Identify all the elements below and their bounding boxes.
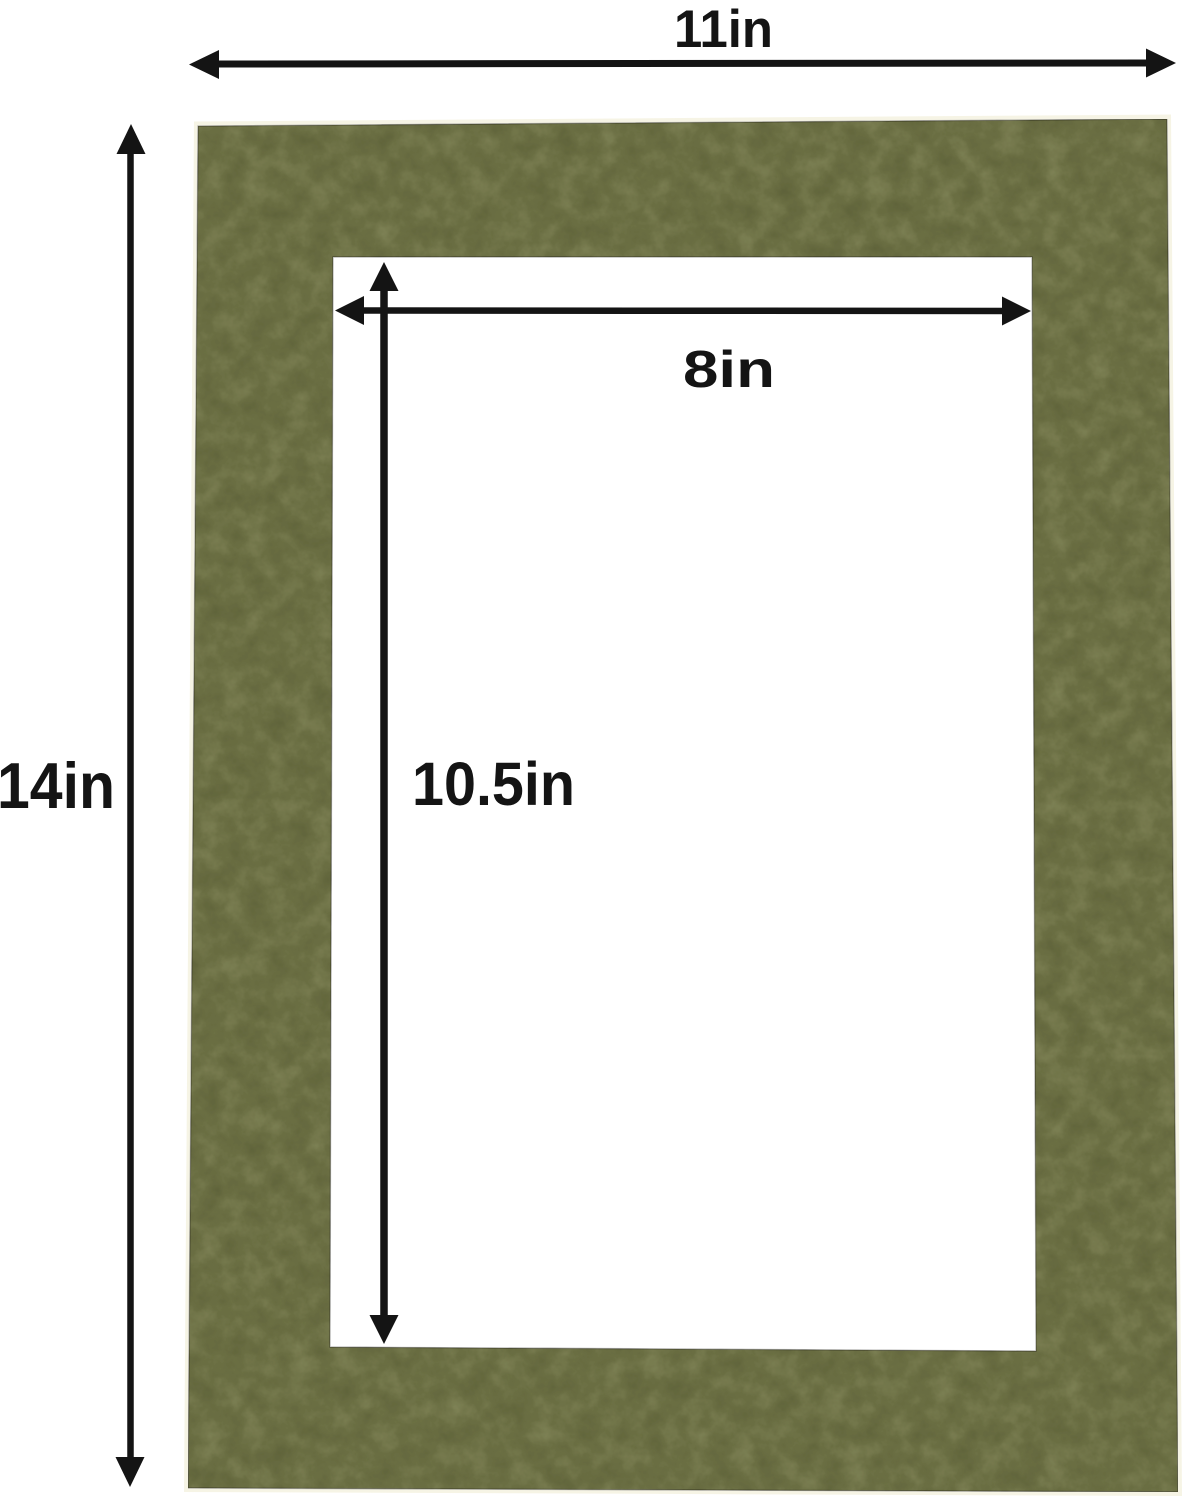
svg-text:14in: 14in bbox=[0, 749, 115, 822]
svg-text:8in: 8in bbox=[683, 341, 775, 399]
svg-text:10.5in: 10.5in bbox=[412, 750, 575, 818]
svg-text:11in: 11in bbox=[674, 0, 773, 59]
